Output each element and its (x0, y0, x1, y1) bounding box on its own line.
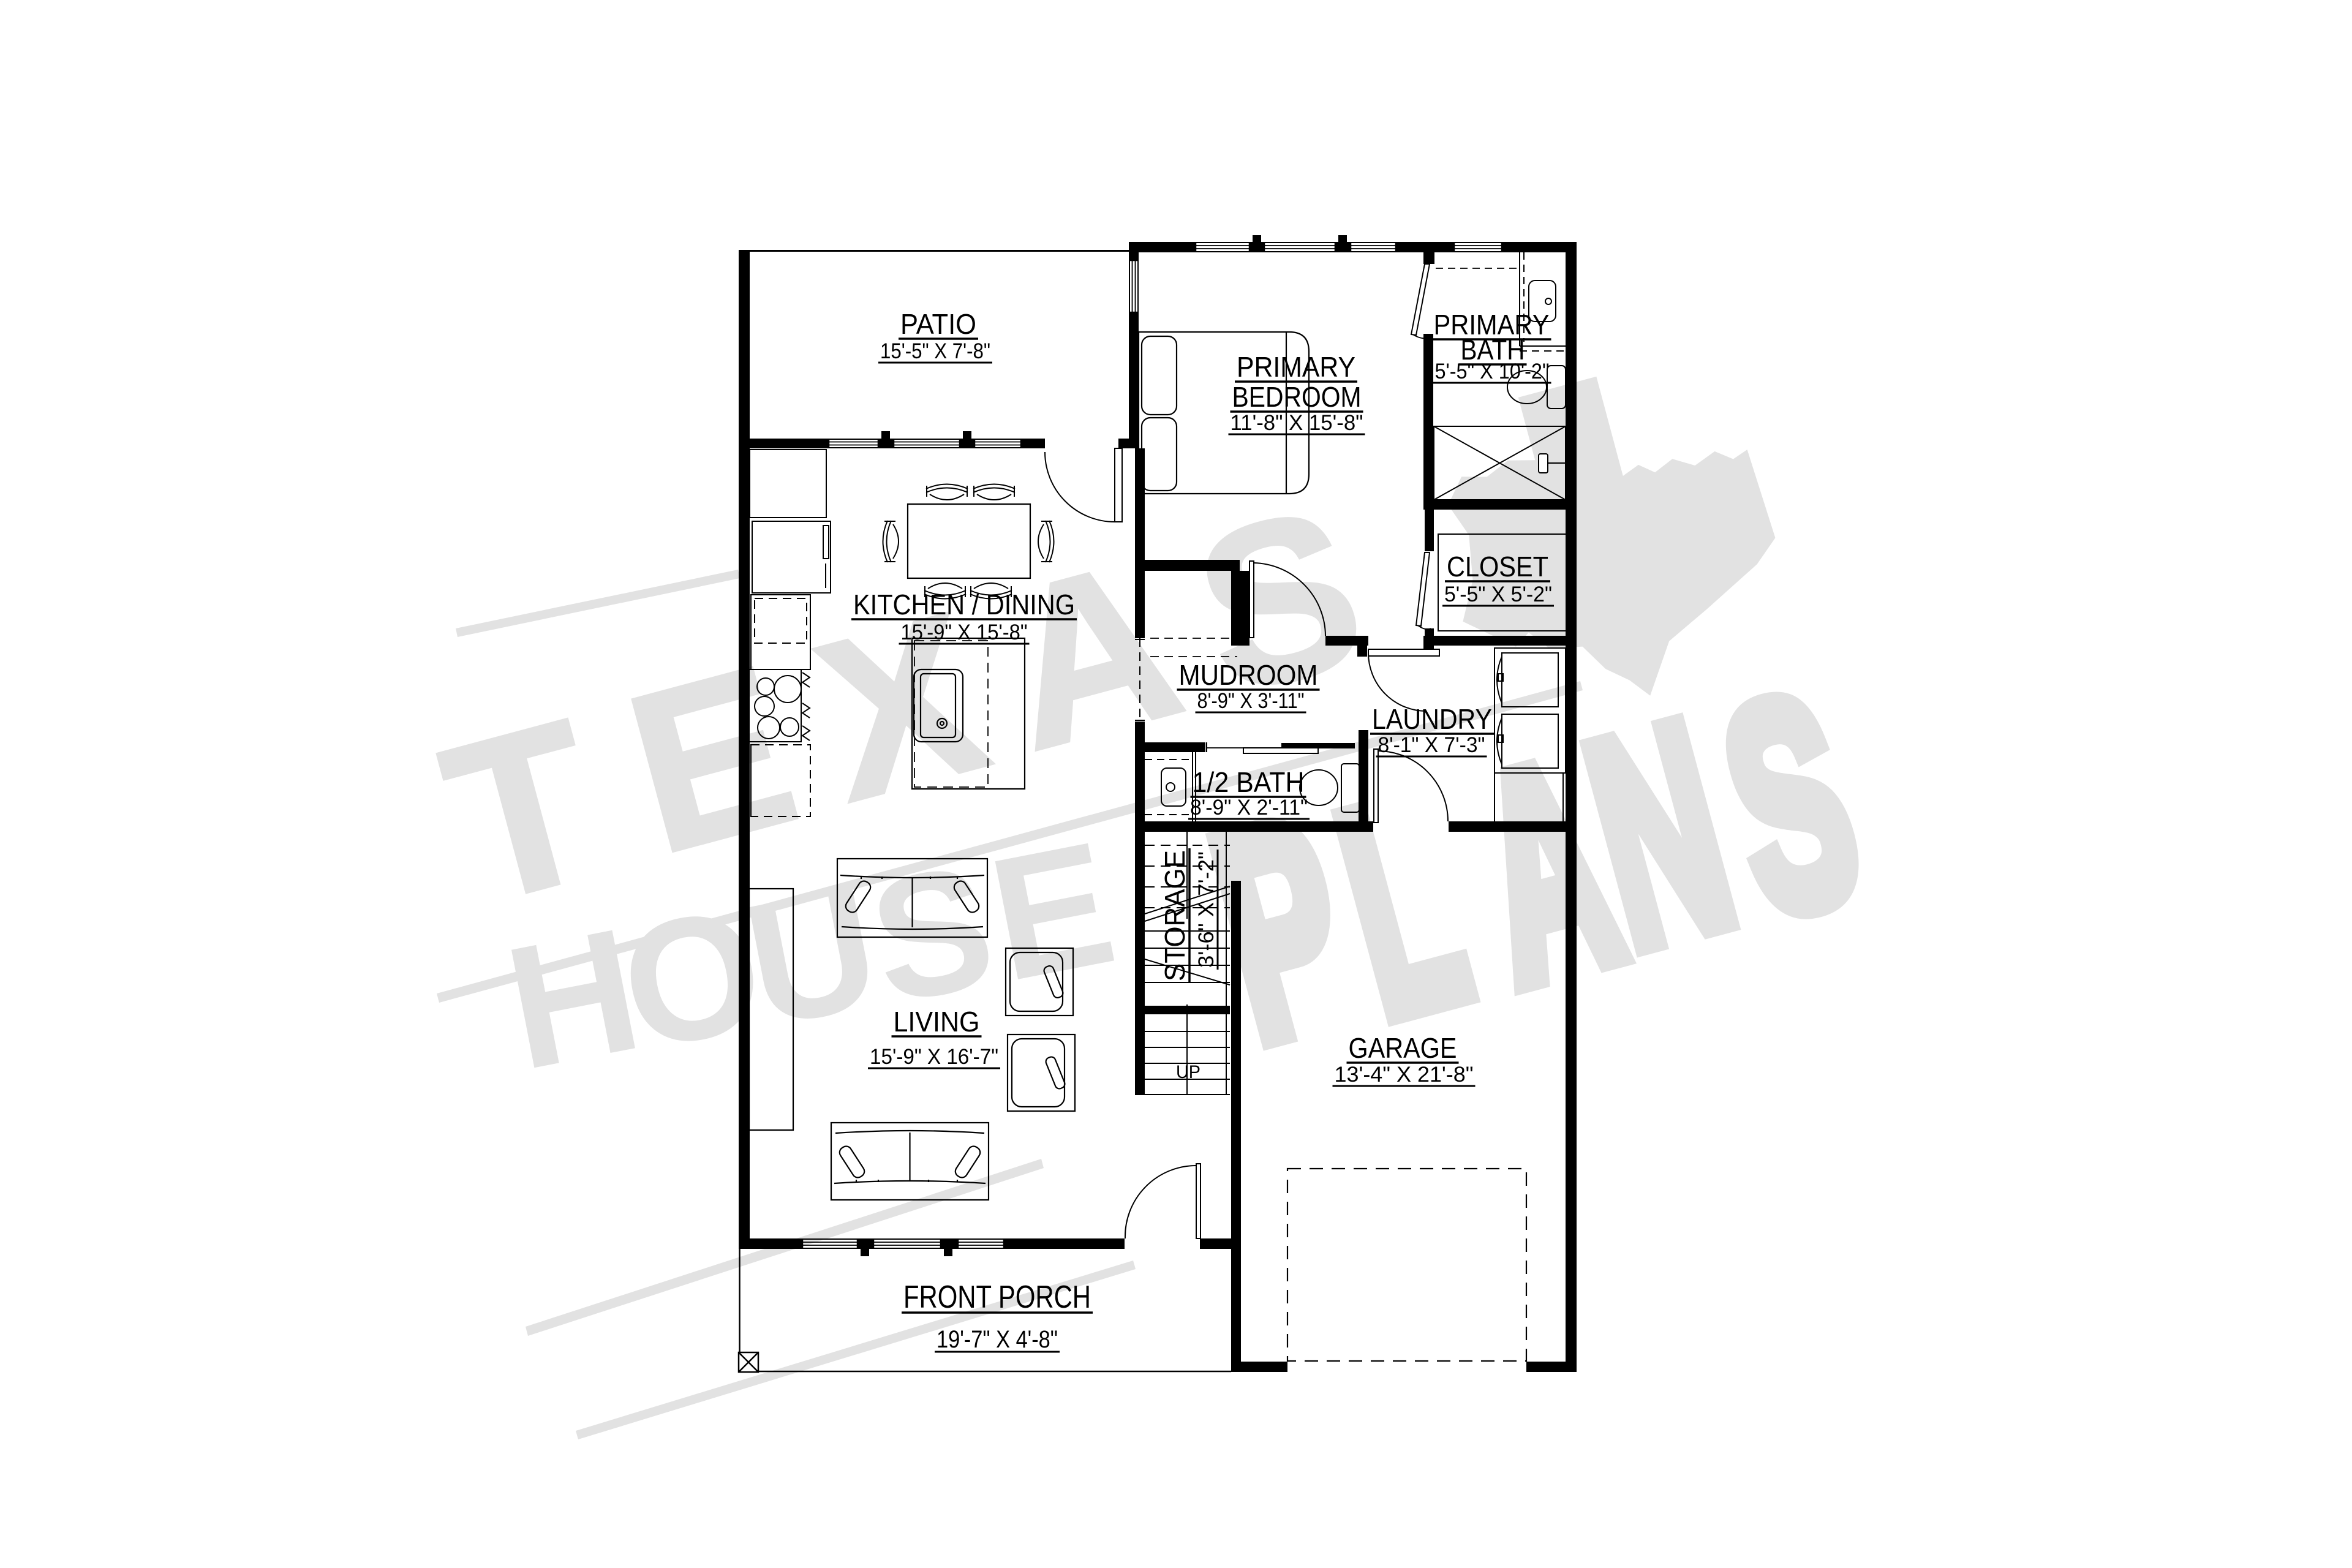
svg-text:STORAGE: STORAGE (1159, 850, 1191, 981)
svg-text:LAUNDRY: LAUNDRY (1372, 703, 1492, 735)
svg-text:8'-9" X 2'-11": 8'-9" X 2'-11" (1190, 796, 1308, 820)
svg-text:BEDROOM: BEDROOM (1232, 381, 1362, 413)
svg-text:5'-5" X 5'-2": 5'-5" X 5'-2" (1444, 582, 1552, 606)
svg-text:KITCHEN / DINING: KITCHEN / DINING (853, 589, 1075, 620)
svg-text:PATIO: PATIO (900, 308, 976, 340)
svg-text:19'-7" X 4'-8": 19'-7" X 4'-8" (937, 1326, 1058, 1353)
svg-text:8'-1" X 7'-3": 8'-1" X 7'-3" (1378, 733, 1485, 757)
svg-text:8'-9" X 3'-11": 8'-9" X 3'-11" (1197, 689, 1305, 713)
svg-text:PRIMARY: PRIMARY (1237, 351, 1355, 383)
svg-text:13'-4" X 21'-8": 13'-4" X 21'-8" (1335, 1063, 1474, 1087)
svg-text:3'-6" X 7'-2": 3'-6" X 7'-2" (1194, 851, 1218, 968)
svg-text:UP: UP (1176, 1062, 1200, 1082)
svg-text:FRONT PORCH: FRONT PORCH (903, 1280, 1091, 1315)
svg-text:5'-5" X 10'-2": 5'-5" X 10'-2" (1435, 360, 1550, 383)
svg-text:15'-5" X 7'-8": 15'-5" X 7'-8" (880, 339, 990, 363)
svg-text:11'-8" X 15'-8": 11'-8" X 15'-8" (1231, 411, 1363, 435)
svg-text:MUDROOM: MUDROOM (1179, 659, 1318, 691)
svg-text:CLOSET: CLOSET (1447, 551, 1548, 582)
svg-text:15'-9" X 16'-7": 15'-9" X 16'-7" (870, 1045, 998, 1069)
svg-text:LIVING: LIVING (894, 1006, 980, 1038)
svg-text:15'-9" X 15'-8": 15'-9" X 15'-8" (901, 620, 1028, 644)
svg-text:GARAGE: GARAGE (1349, 1032, 1457, 1064)
svg-text:1/2 BATH: 1/2 BATH (1193, 766, 1305, 798)
